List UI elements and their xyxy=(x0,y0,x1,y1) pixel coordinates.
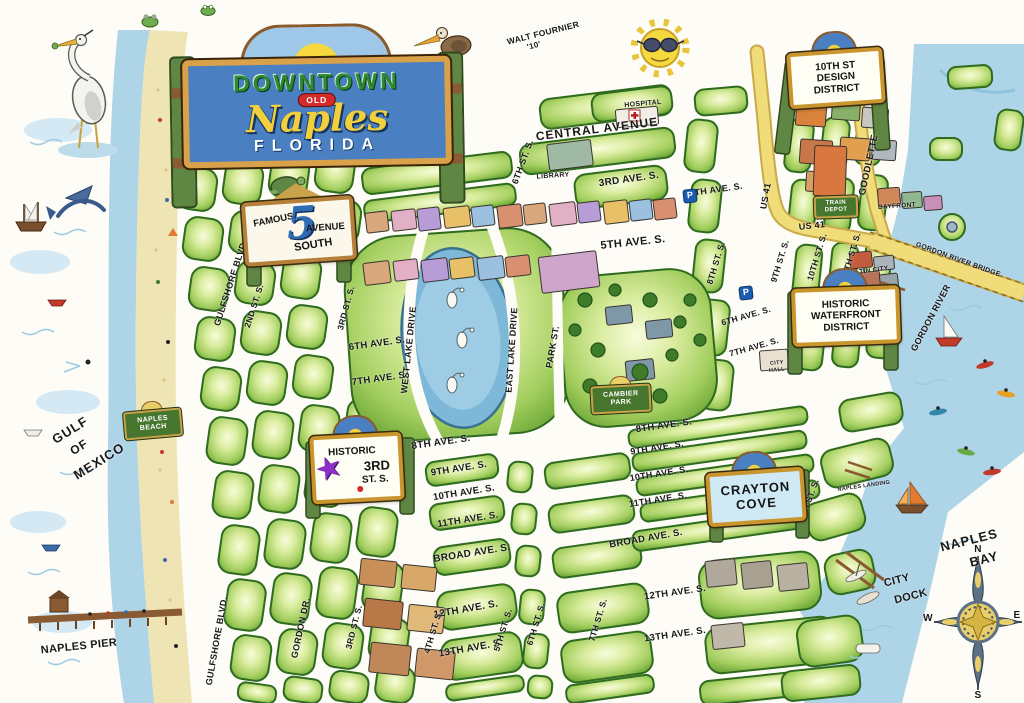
title-sign-board: DOWNTOWN OLD Naples FLORIDA xyxy=(182,56,452,169)
sailfish-icon xyxy=(46,186,104,220)
title-old-badge: OLD xyxy=(297,93,336,108)
crayton-line2: COVE xyxy=(736,496,778,513)
compass-n: N xyxy=(974,545,982,555)
downtown-old-naples-sign: DOWNTOWN OLD Naples FLORIDA xyxy=(182,56,452,169)
crayton-cove-sign: CRAYTON COVE xyxy=(705,467,807,528)
design-district-line3: DISTRICT xyxy=(813,82,860,96)
historic-third-street-sign: HISTORIC 3RD ST. S. ★ ● xyxy=(309,432,404,505)
cambier-park-sign: CAMBIER PARK xyxy=(590,383,651,414)
frog-icons xyxy=(142,5,215,27)
fountain-roundabout xyxy=(939,214,965,240)
parking-sign-2: P xyxy=(738,285,753,300)
depot-line2: DEPOT xyxy=(825,207,848,215)
compass-w: W xyxy=(923,614,933,624)
fifth-avenue-word: AVENUE xyxy=(306,222,346,235)
compass-e: E xyxy=(1014,611,1021,621)
naples-beach-line2: BEACH xyxy=(140,423,167,433)
third-sts: ST. S. xyxy=(362,473,389,486)
cambier-line2: PARK xyxy=(611,398,632,407)
parking-sign-1: P xyxy=(682,188,697,203)
compass-rose xyxy=(934,556,1022,690)
naples-illustrated-map: CENTRAL AVENUE 3RD AVE. S. 4TH AVE. S. 5… xyxy=(0,0,1024,703)
naples-beach-sign: NAPLES BEACH xyxy=(123,408,183,441)
design-district-sign: 10TH ST DESIGN DISTRICT xyxy=(786,47,886,110)
sun-with-sunglasses xyxy=(634,22,686,74)
historic-waterfront-district-sign: HISTORIC WATERFRONT DISTRICT xyxy=(791,285,901,347)
train-depot-sign: TRAIN DEPOT xyxy=(814,195,859,219)
red-dot-icon: ● xyxy=(356,481,365,497)
compass-s: S xyxy=(975,691,982,701)
gulf-water xyxy=(10,30,154,703)
third-3rd: 3RD xyxy=(364,458,391,474)
fifth-avenue-south-sign: FAMOUS 5 AVENUE SOUTH xyxy=(241,195,357,267)
waterfront-line3: DISTRICT xyxy=(823,321,869,334)
title-florida: FLORIDA xyxy=(254,136,381,156)
